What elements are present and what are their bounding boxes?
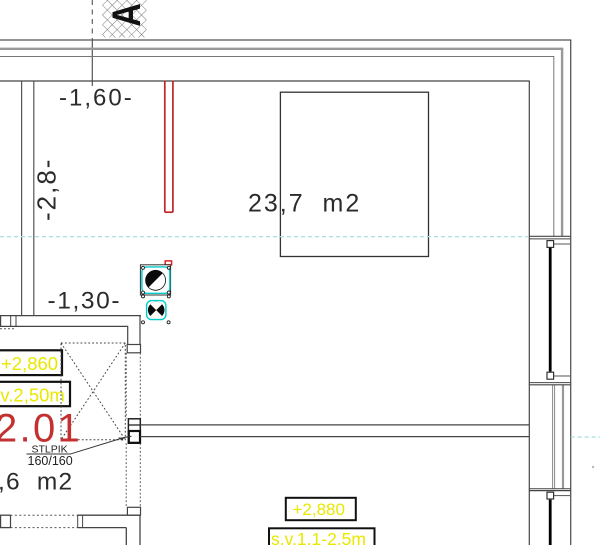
svg-text:23,7 m2: 23,7 m2 (248, 190, 361, 218)
svg-text:+2,880: +2,880 (293, 500, 345, 519)
svg-text:-1,60-: -1,60- (59, 85, 134, 112)
svg-text:s.v.2,50m: s.v.2,50m (0, 385, 65, 406)
svg-text:-1,30-: -1,30- (48, 288, 122, 315)
svg-text:-2,8-: -2,8- (32, 158, 62, 221)
svg-text:+2,860: +2,860 (1, 353, 58, 374)
svg-text:s.v.1.1-2.5m: s.v.1.1-2.5m (271, 529, 366, 545)
svg-text:160/160: 160/160 (28, 454, 73, 468)
svg-text:,6 m2: ,6 m2 (0, 469, 73, 496)
svg-text:2.01: 2.01 (0, 407, 82, 451)
svg-text:A: A (104, 3, 149, 27)
